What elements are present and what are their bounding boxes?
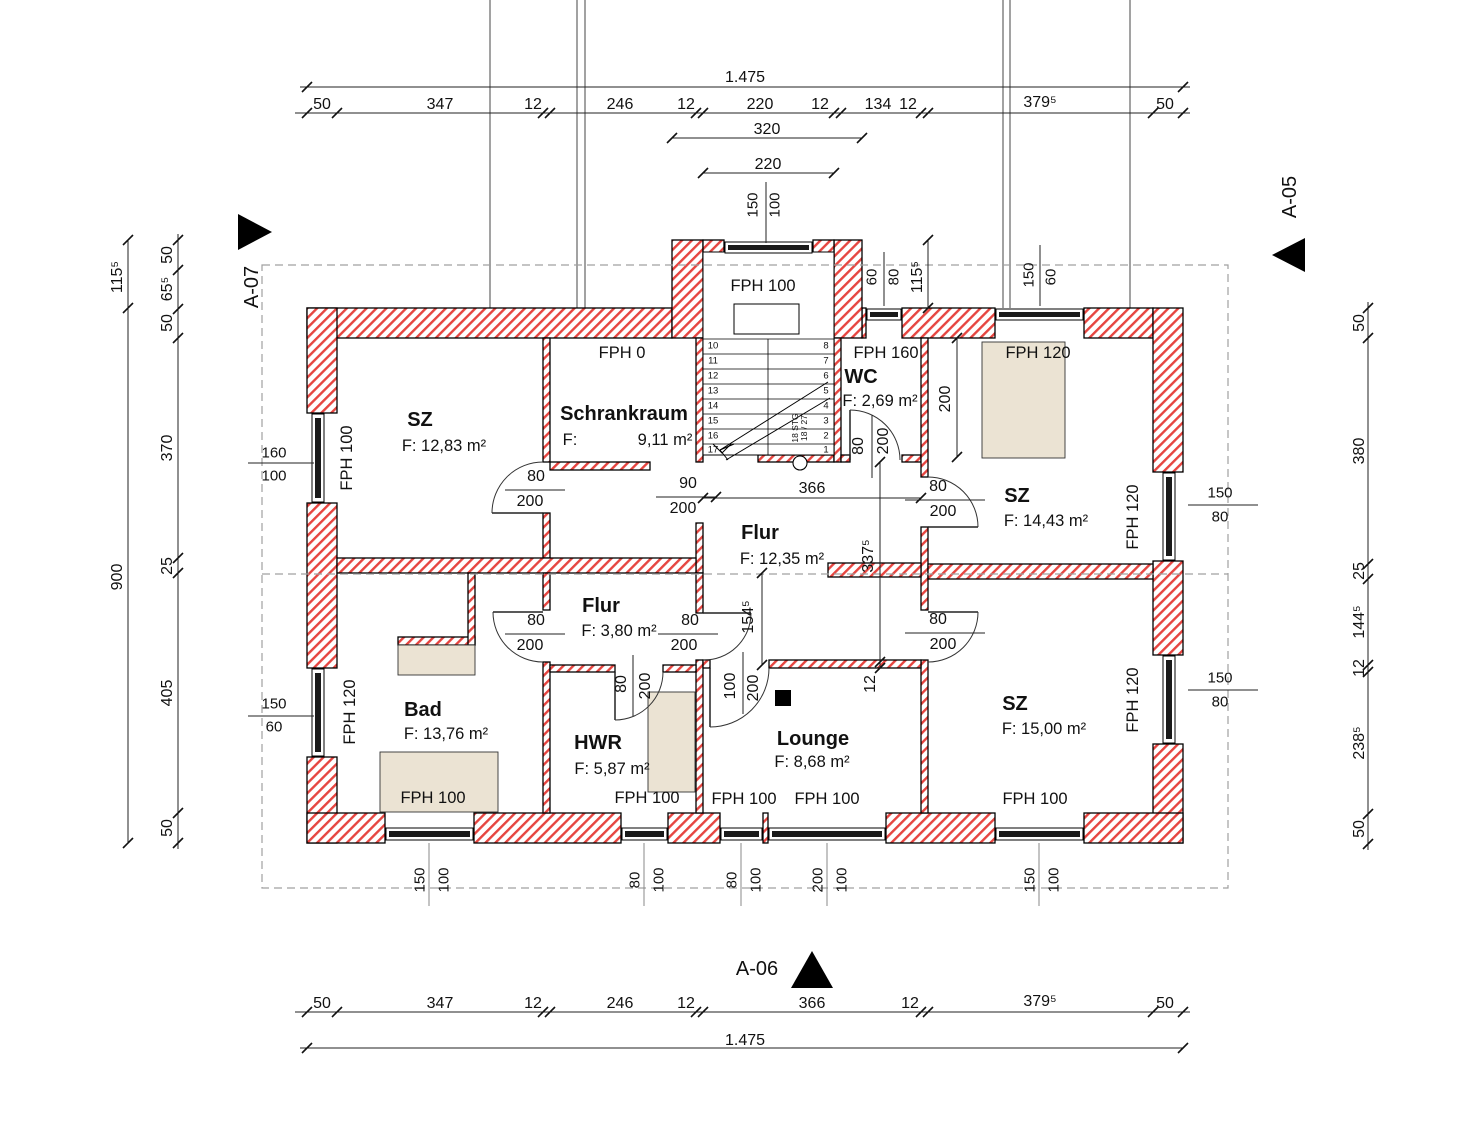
floor-plan-canvas: 1.4755034712246122201213412379⁵503202201…: [0, 0, 1481, 1127]
staircase: [703, 252, 834, 470]
marker-triangle-a06: [791, 951, 833, 988]
marker-triangle-a07: [238, 214, 272, 250]
floor-plan-drawing: [0, 0, 1481, 1127]
marker-triangle-a05: [1272, 238, 1305, 272]
